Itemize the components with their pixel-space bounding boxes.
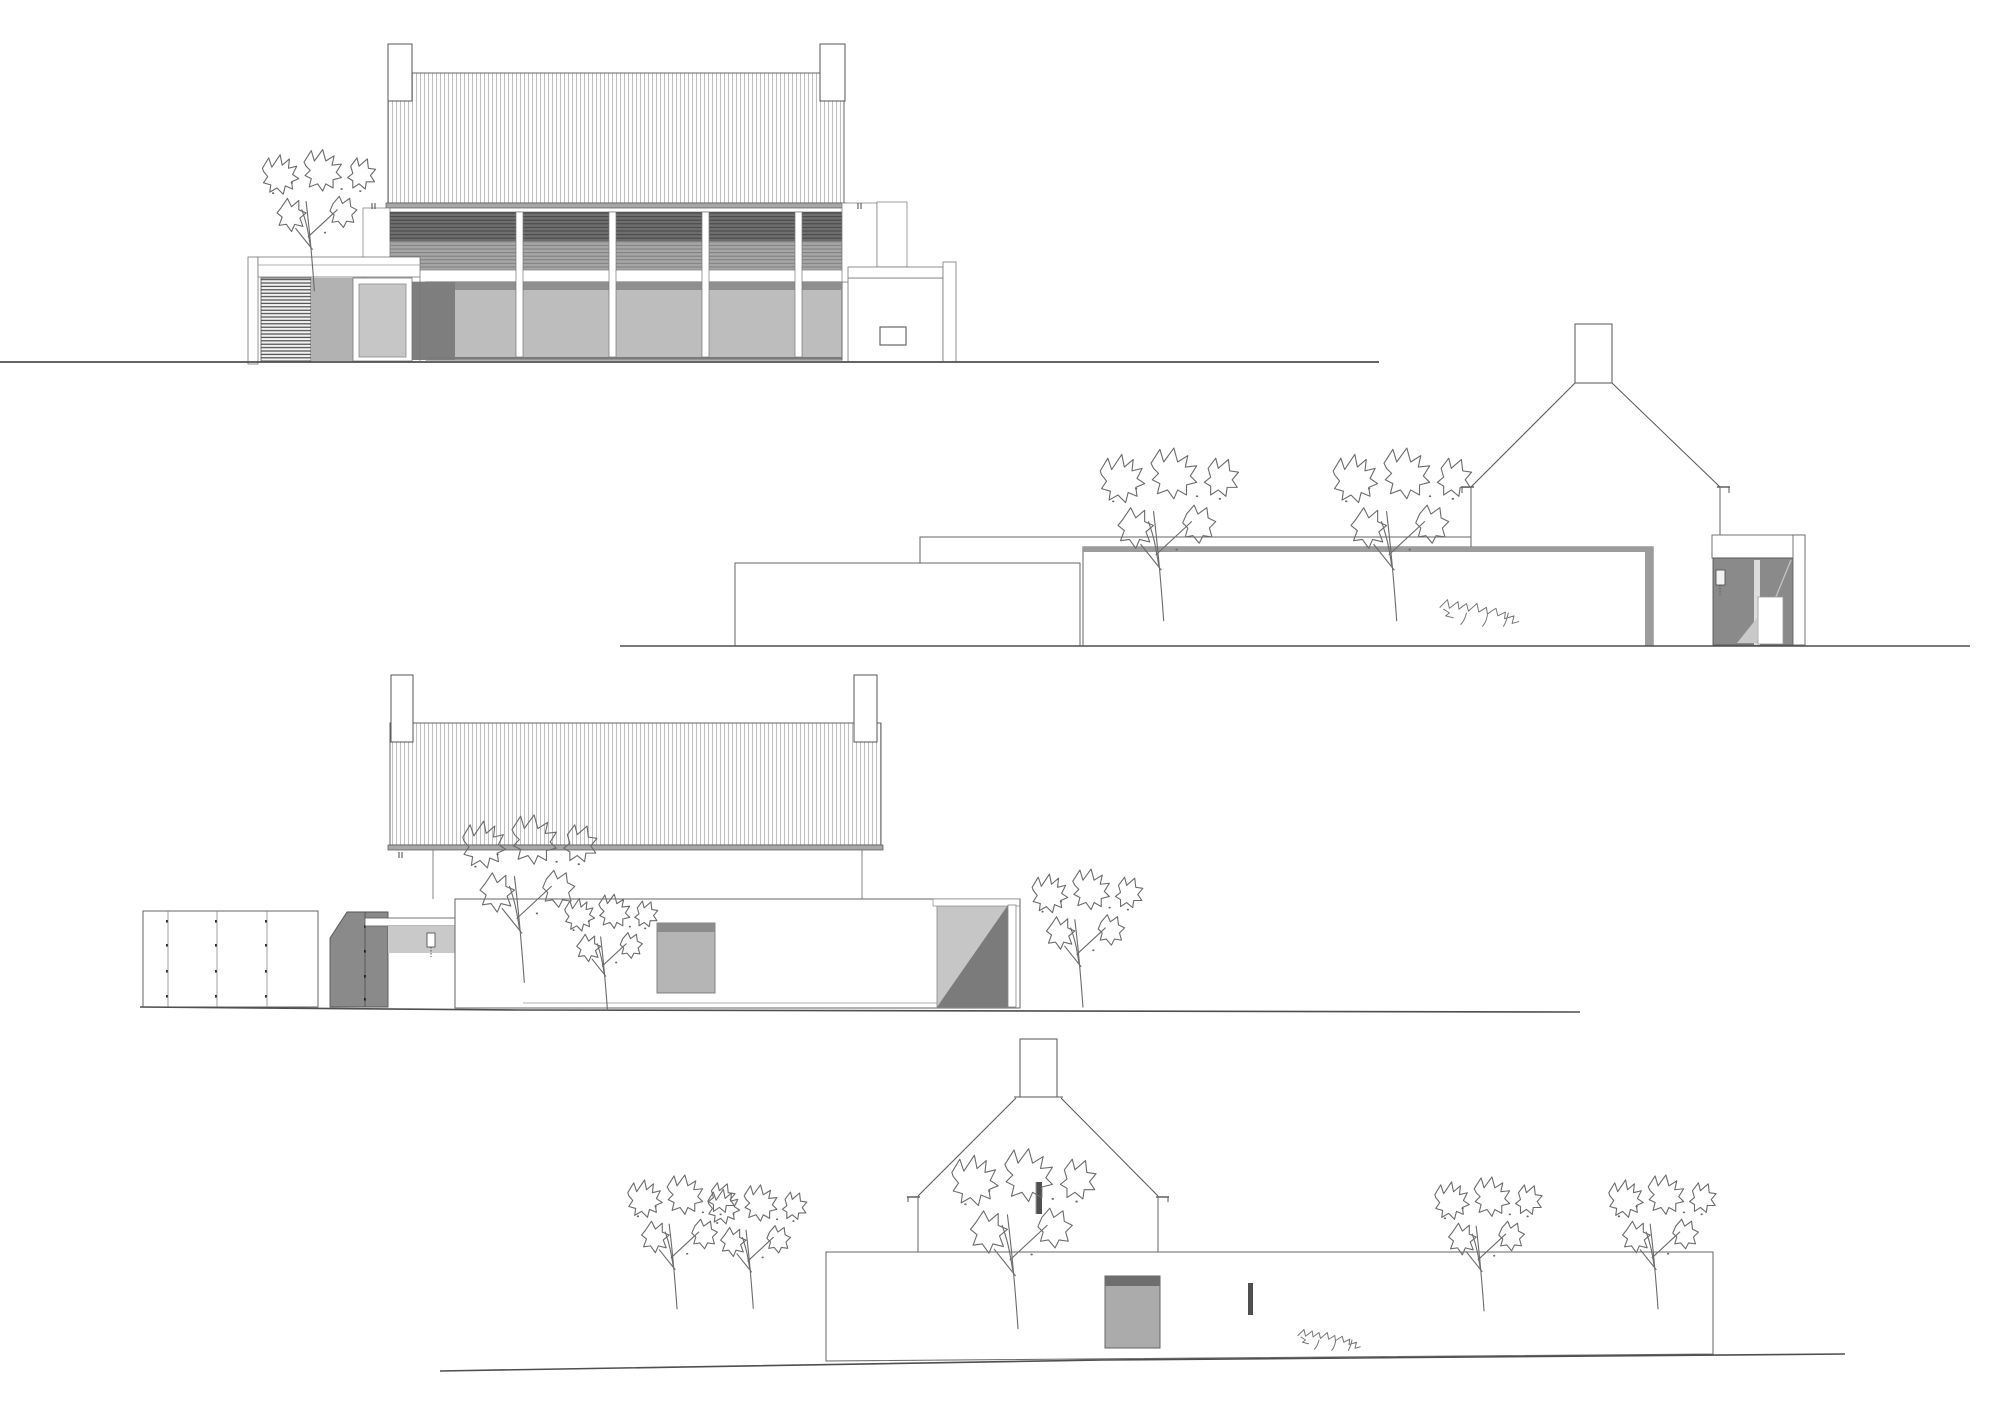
entry-door-glass <box>359 284 406 357</box>
tree-sketch <box>1032 869 1143 1007</box>
chimney-left <box>391 675 413 742</box>
fence-fixing <box>265 944 267 947</box>
timber-fence <box>143 911 318 1007</box>
elevation-views <box>0 44 1970 1371</box>
corner-head-band <box>933 899 1020 906</box>
louver-screen <box>261 278 311 361</box>
glazing-wall <box>426 282 842 360</box>
roof-slope-right <box>1061 1098 1158 1196</box>
corner-mullion <box>1008 905 1016 1007</box>
drawing-canvas <box>0 0 2000 1414</box>
eave-band <box>386 203 846 208</box>
doorway-opening <box>1758 597 1783 644</box>
wing-left-fascia <box>258 257 420 277</box>
gate-fixing <box>364 998 366 1001</box>
wall-window <box>1105 1276 1160 1348</box>
wall-slit-window <box>1248 1283 1253 1315</box>
chimney <box>1020 1039 1057 1097</box>
fence-fixing <box>215 970 217 973</box>
fence-fixing <box>166 995 168 998</box>
fence-fixing <box>265 970 267 973</box>
gate-fixing <box>364 975 366 978</box>
roof-slope-left <box>918 1098 1016 1196</box>
gable-slit-window <box>1036 1182 1042 1214</box>
wing-left-pilaster <box>248 257 258 364</box>
gate-fixing <box>364 950 366 953</box>
fence-fixing <box>265 995 267 998</box>
drawing-sheet <box>0 0 2000 1414</box>
mullion <box>516 212 523 357</box>
chimney-breast <box>877 202 907 267</box>
porch-pilaster <box>1793 535 1805 645</box>
elevation-long-east <box>620 324 1970 646</box>
chimney <box>1575 324 1612 383</box>
wall-end-strip <box>1645 547 1653 646</box>
roof-slope-left <box>1471 383 1575 487</box>
fence-fixing <box>166 920 168 923</box>
fence-fixing <box>166 970 168 973</box>
mullion <box>795 212 802 357</box>
tree-sketch <box>708 1185 807 1308</box>
fence-fixing <box>265 920 267 923</box>
porch-fascia <box>1712 535 1805 558</box>
entry-light-fixture <box>427 933 435 947</box>
elevation-long-north <box>0 44 1379 364</box>
fence-fixing <box>215 995 217 998</box>
glazing-corner-shadow <box>412 282 455 360</box>
porch-shade-band <box>388 926 455 953</box>
garden-wall-left <box>735 563 1080 646</box>
chimney-left <box>388 44 412 101</box>
wing-right-fascia <box>848 267 943 278</box>
wall-window-head <box>1105 1276 1160 1286</box>
fence-fixing <box>215 944 217 947</box>
fence-fixing <box>166 944 168 947</box>
wing-right-pilaster <box>943 262 956 362</box>
wing-right-window <box>880 327 906 345</box>
mullion <box>609 212 616 357</box>
low-wall <box>455 899 1020 1008</box>
roof-corrugated <box>388 73 844 203</box>
wall-window-head <box>657 923 715 932</box>
roof-corrugated <box>390 723 881 845</box>
fence-fixing <box>215 920 217 923</box>
eave-band <box>388 845 883 850</box>
elevation-long-west <box>440 1039 1845 1371</box>
garden-wall-front <box>1083 547 1653 646</box>
elevation-long-south <box>140 675 1580 1012</box>
wall-window <box>657 923 715 993</box>
shaded-glazing <box>311 278 353 361</box>
entry-rail <box>365 918 455 926</box>
mullion <box>702 212 709 357</box>
chimney-right <box>854 675 877 742</box>
glazing-top-shade <box>426 282 842 290</box>
long-wall <box>826 1252 1713 1361</box>
chimney-right <box>820 44 845 101</box>
door-lock-fixture <box>1716 570 1725 585</box>
wing-right-wall <box>848 278 943 362</box>
roof-slope-right <box>1612 383 1720 487</box>
